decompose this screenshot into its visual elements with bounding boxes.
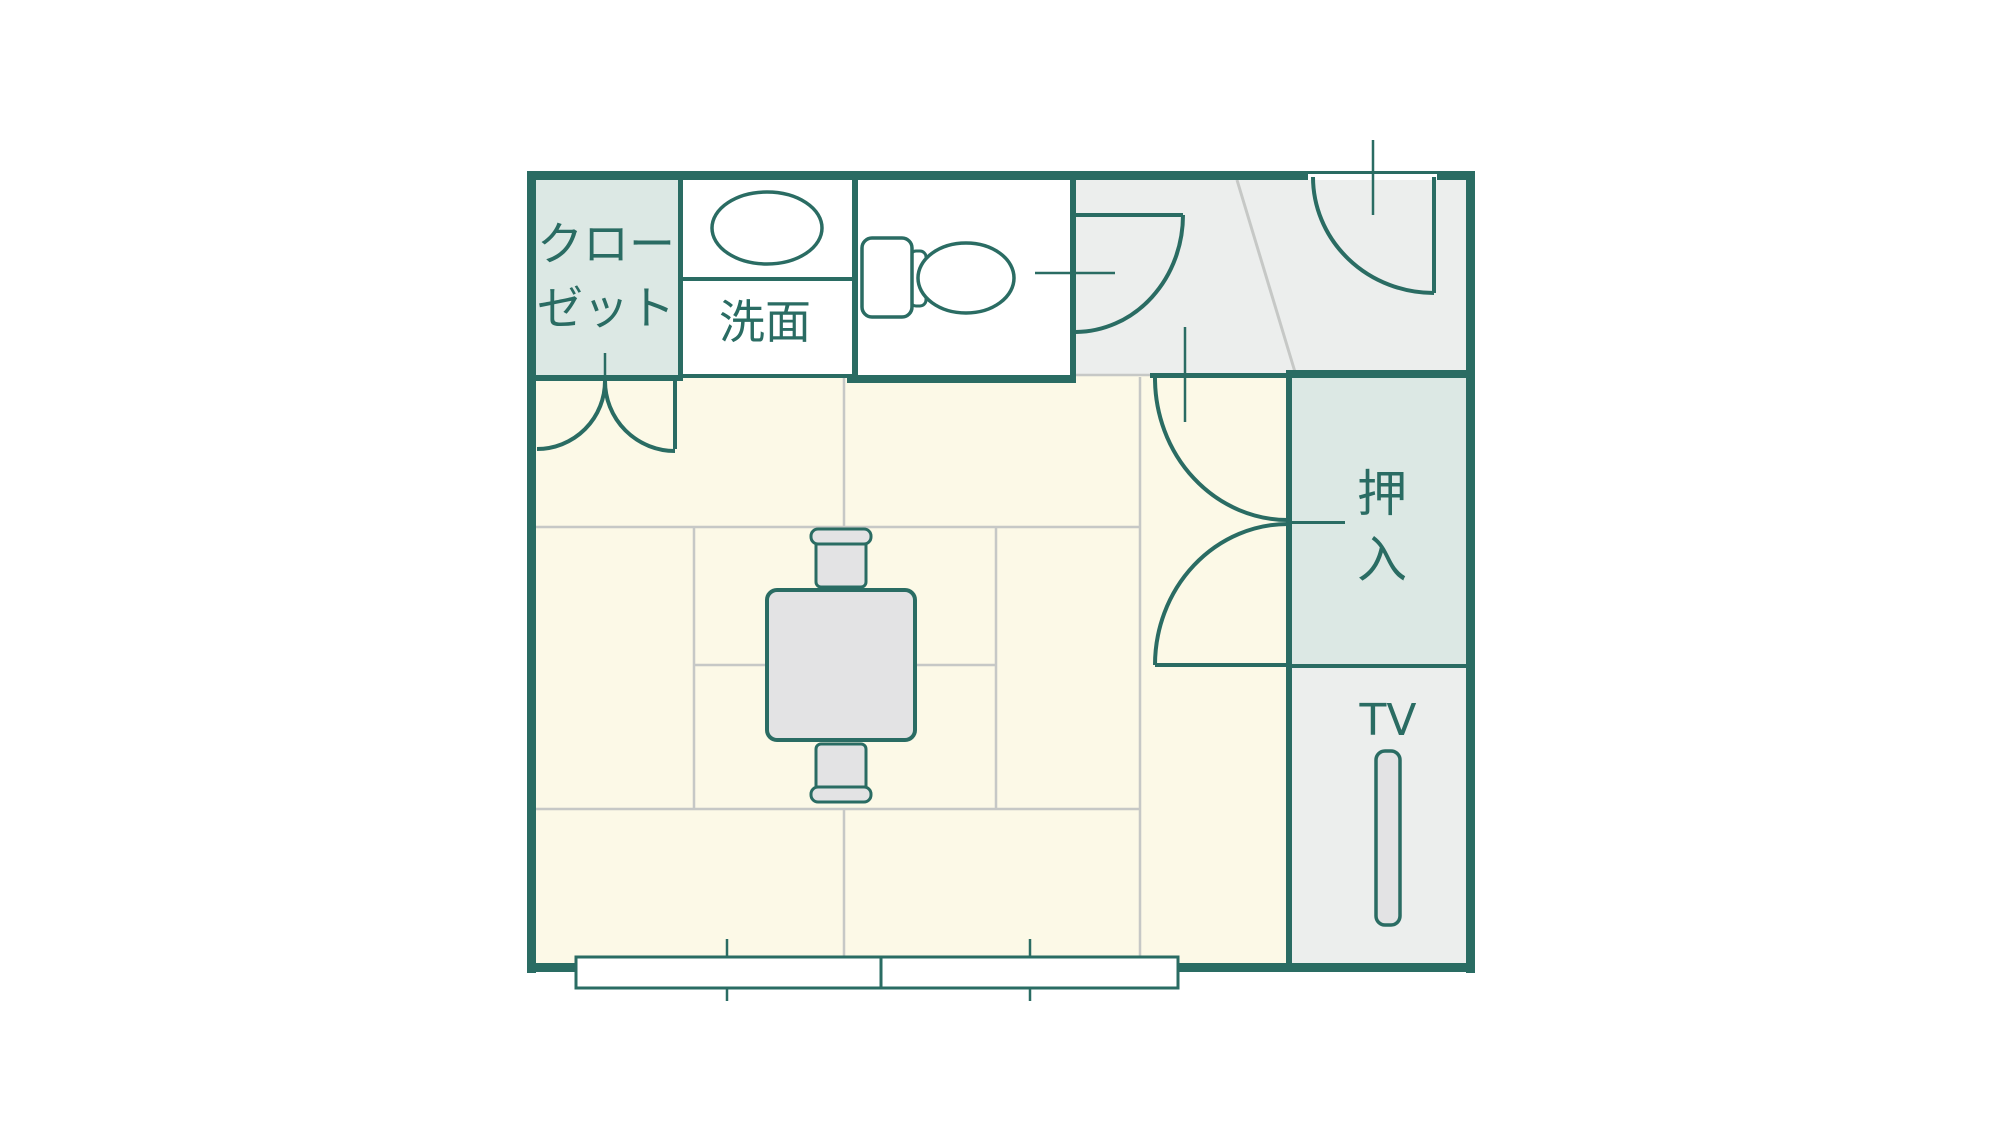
washstand-counter-divider [678,277,858,281]
closet-floor [536,178,680,377]
toilet-bottom-wall [847,375,1076,383]
chair-top-back [811,529,871,544]
oshiire-door-meeting-line [1292,521,1345,524]
toilet-left-wall [852,178,858,383]
tv-label: TV [1359,695,1417,746]
oshiire-tv-divider-wall [1292,664,1466,668]
washstand-label: 洗面 [719,295,811,349]
oshiire-label-char2: 入 [1357,531,1407,589]
outer-wall-right [1466,171,1475,973]
outer-wall-left [527,171,536,973]
closet-label-line2: ゼット [537,281,675,335]
low-table [767,590,915,740]
toilet-tank [862,238,912,317]
floor-plan-drawing: クロー ゼット 洗面 押 入 TV [0,0,2000,1125]
toilet-icon [918,243,1014,313]
toilet-right-wall [1070,178,1076,383]
entry-genkan-floor [1076,180,1466,375]
window-right [881,957,1178,988]
closet-label-line1: クロー [537,217,675,271]
washstand-bottom-wall [683,374,852,378]
chair-bottom-seat [816,744,866,791]
floor-plan-canvas: クロー ゼット 洗面 押 入 TV [0,0,2000,1125]
oshiire-label-char1: 押 [1357,465,1407,523]
chair-bottom-back [811,787,871,802]
tv-unit [1376,751,1400,925]
oshiire-top-wall [1287,370,1466,378]
oshiire-left-wall [1286,370,1292,968]
window-left [576,957,881,988]
outer-wall-top-left-segment [527,171,1308,180]
sink-icon [712,192,822,264]
genkan-bottom-wall [1150,373,1287,378]
